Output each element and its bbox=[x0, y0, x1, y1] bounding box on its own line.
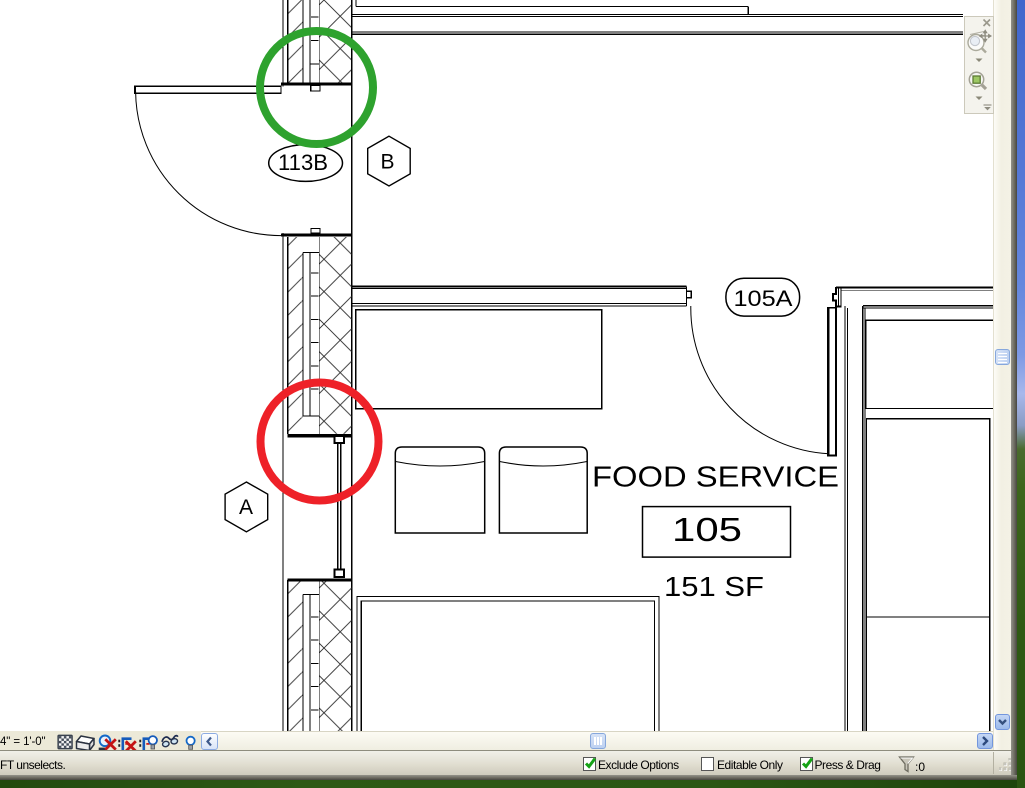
svg-text:FOOD SERVICE: FOOD SERVICE bbox=[592, 462, 839, 494]
svg-text:A: A bbox=[239, 496, 253, 519]
svg-text:B: B bbox=[380, 150, 394, 173]
svg-text:113B: 113B bbox=[278, 150, 328, 175]
svg-text:105: 105 bbox=[672, 511, 742, 548]
svg-text:105A: 105A bbox=[734, 286, 793, 311]
svg-text:151 SF: 151 SF bbox=[664, 571, 764, 602]
